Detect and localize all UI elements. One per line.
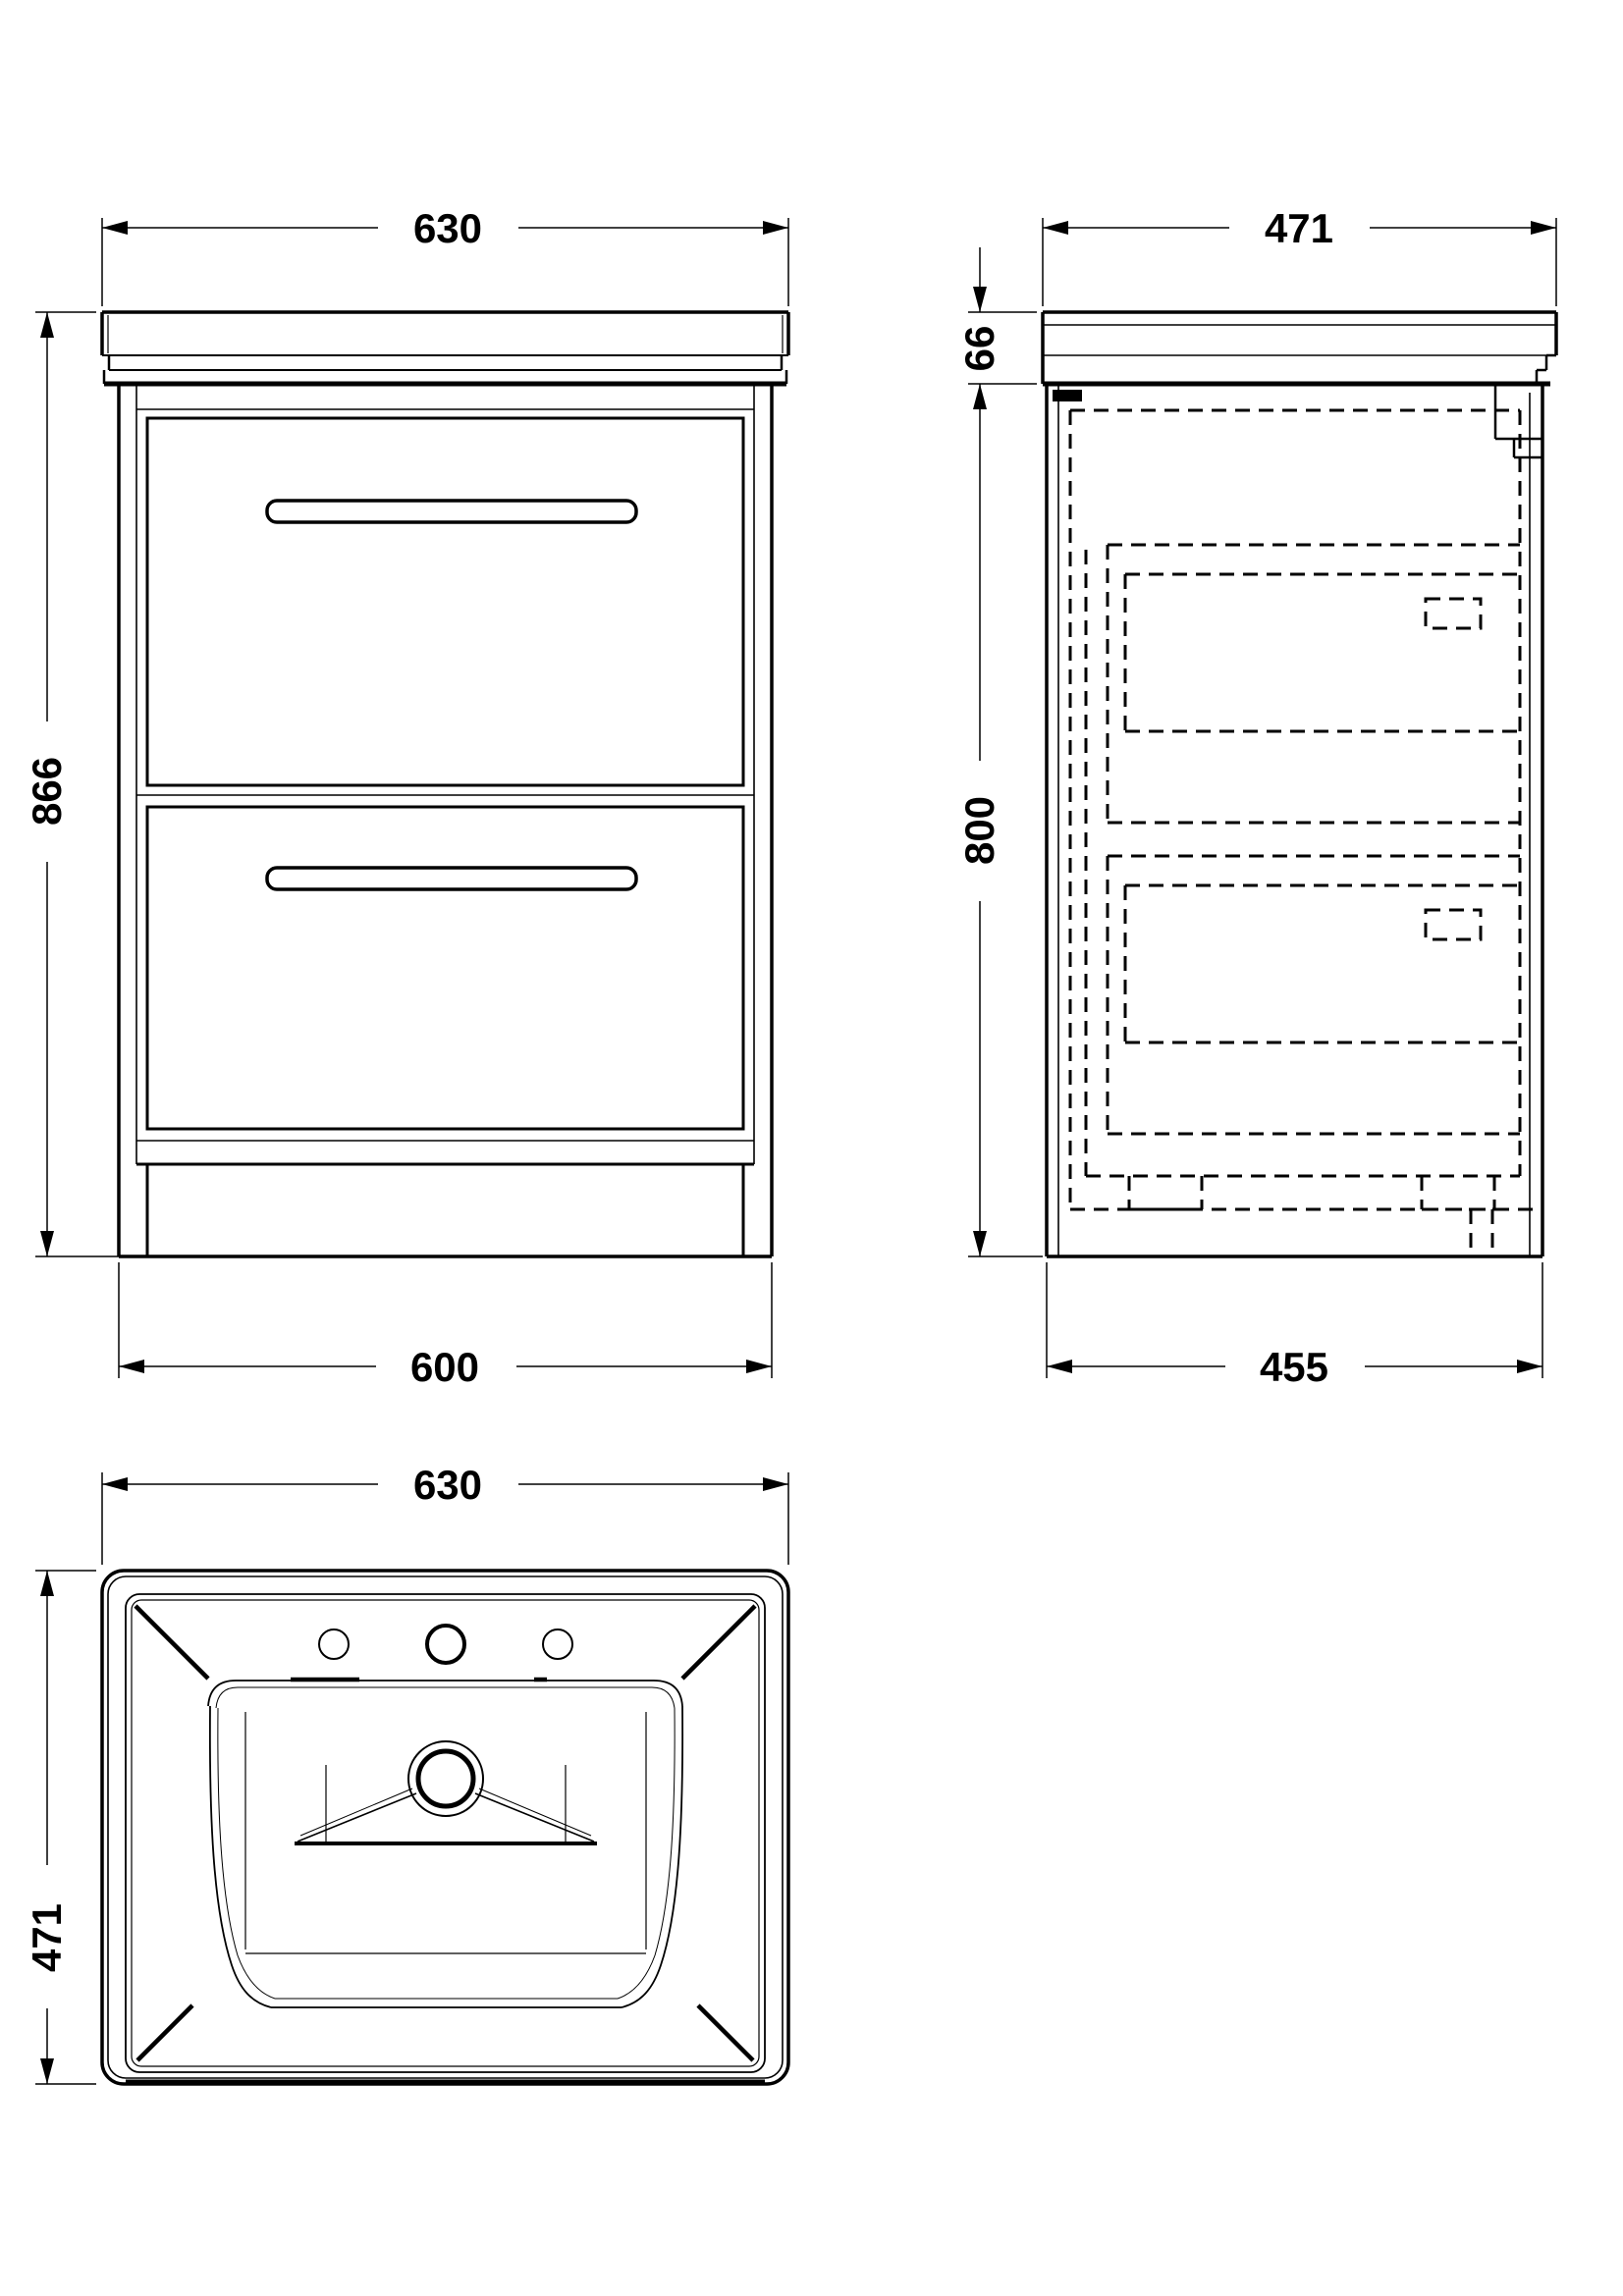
dim-label-basin-depth: 471 (24, 1903, 70, 1972)
wall-fixing-bracket (1053, 390, 1082, 401)
dim-label-side-worktop-height: 66 (956, 326, 1002, 372)
sheet-background (0, 0, 1623, 2296)
dim-label-side-top-depth: 471 (1265, 205, 1333, 251)
dim-label-front-base-width: 600 (410, 1344, 479, 1390)
dim-label-side-cabinet-height: 800 (956, 796, 1002, 865)
dim-label-side-base-depth: 455 (1260, 1344, 1328, 1390)
drawing-sheet: 630 (0, 0, 1623, 2296)
dim-label-basin-width: 630 (413, 1462, 482, 1508)
technical-drawing-canvas: 630 (0, 0, 1623, 2296)
dim-label-front-top-width: 630 (413, 205, 482, 251)
dim-label-front-height: 866 (24, 757, 70, 826)
